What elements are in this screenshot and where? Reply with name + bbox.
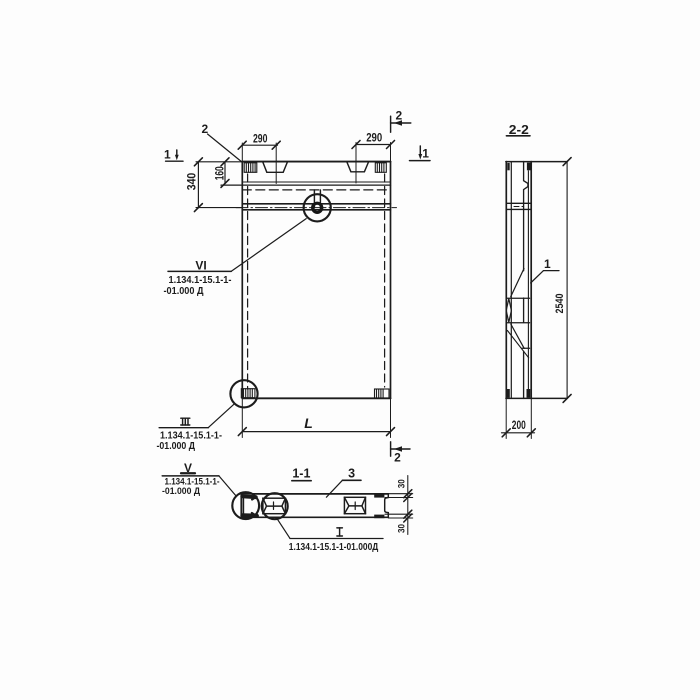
svg-text:1.134.1-15.1-1-: 1.134.1-15.1-1- [160,430,222,441]
svg-text:160: 160 [214,166,226,180]
svg-text:1: 1 [544,257,551,271]
svg-text:-01.000 Д: -01.000 Д [164,286,204,297]
svg-text:1.134.1-15.1-1-: 1.134.1-15.1-1- [169,275,232,286]
svg-text:1: 1 [422,147,429,161]
svg-text:-01.000 Д: -01.000 Д [157,441,196,452]
svg-text:340: 340 [186,173,198,191]
svg-text:2: 2 [394,451,401,465]
svg-text:VI: VI [195,259,206,273]
svg-text:2-2: 2-2 [509,123,529,137]
svg-text:200: 200 [512,420,526,432]
svg-text:1.134.1-15.1-1-01.000Д: 1.134.1-15.1-1-01.000Д [289,542,379,553]
svg-text:1.134.1-15.1-1-: 1.134.1-15.1-1- [165,477,220,487]
svg-text:30: 30 [397,479,408,488]
svg-text:1: 1 [164,148,171,162]
svg-text:30: 30 [397,524,408,533]
svg-text:1-1: 1-1 [292,467,310,481]
svg-text:-01.000 Д: -01.000 Д [162,486,201,496]
svg-text:290: 290 [253,134,268,146]
svg-text:2540: 2540 [554,294,566,314]
svg-text:L: L [304,415,313,431]
svg-text:V: V [184,461,192,475]
svg-text:2: 2 [201,122,208,136]
svg-text:2: 2 [395,109,402,123]
svg-text:290: 290 [366,133,382,145]
svg-text:3: 3 [348,467,355,481]
